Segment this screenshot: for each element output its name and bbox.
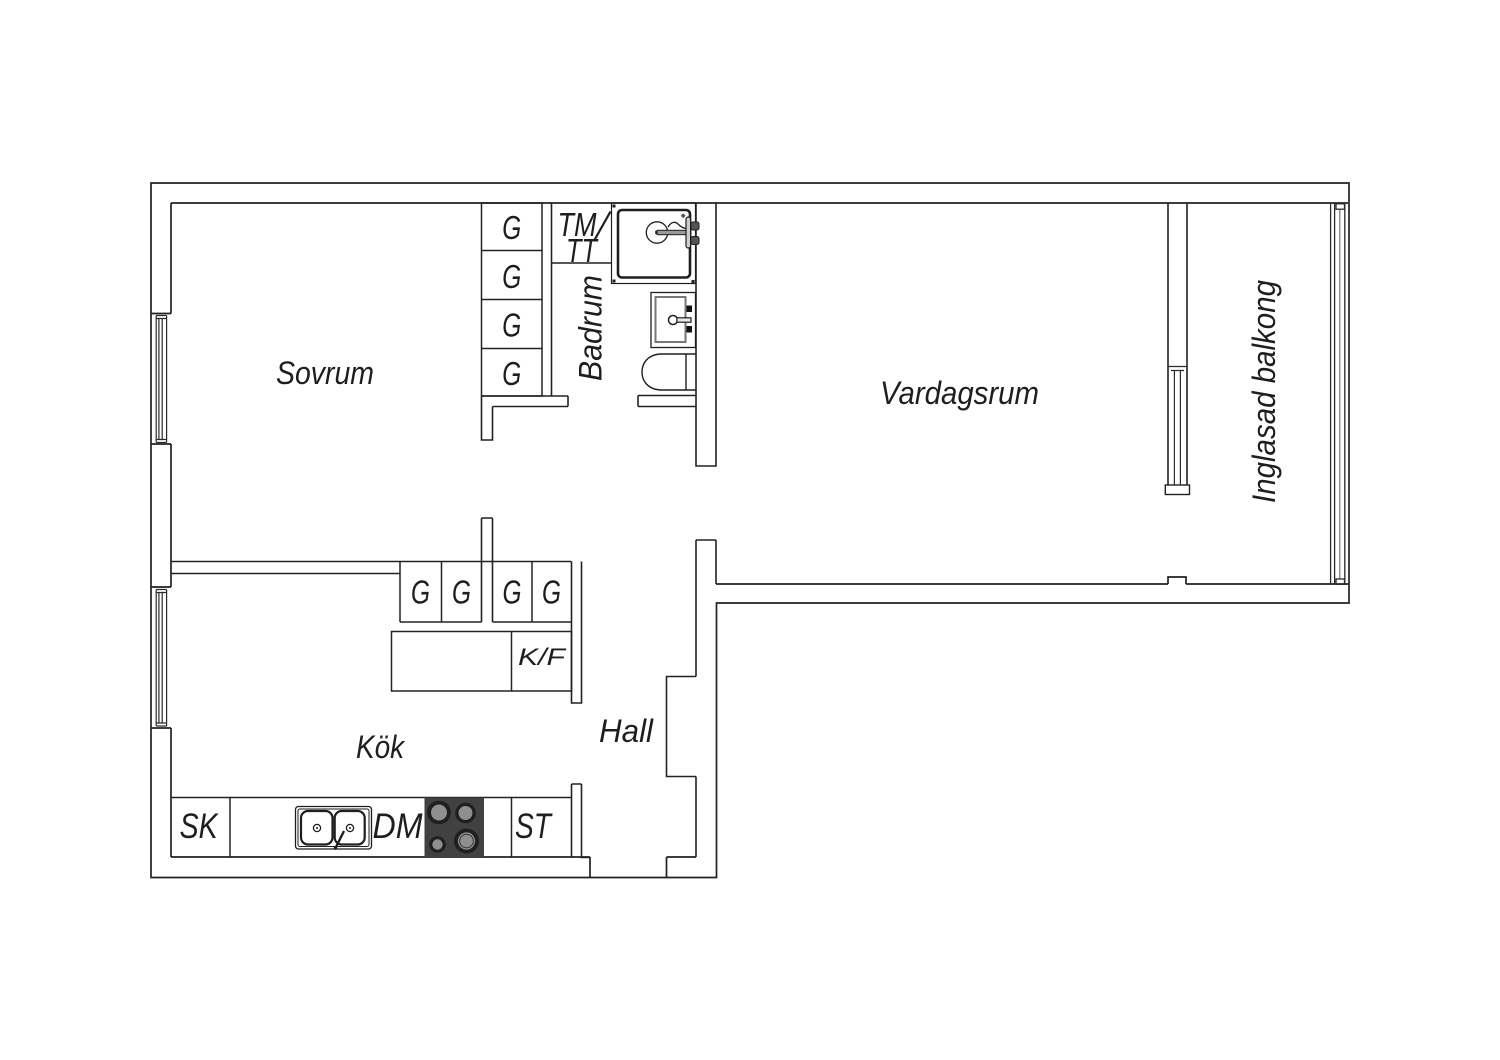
svg-text:G: G bbox=[502, 209, 521, 246]
svg-text:G: G bbox=[502, 258, 521, 295]
svg-text:DM: DM bbox=[373, 807, 424, 846]
svg-text:G: G bbox=[502, 355, 521, 392]
svg-text:G: G bbox=[411, 574, 430, 611]
svg-text:Hall: Hall bbox=[599, 713, 654, 749]
svg-text:K/F: K/F bbox=[518, 644, 567, 671]
svg-text:Kök: Kök bbox=[356, 729, 406, 765]
svg-text:G: G bbox=[542, 574, 561, 611]
svg-text:SK: SK bbox=[180, 807, 219, 846]
svg-text:ST: ST bbox=[515, 807, 553, 846]
svg-text:Sovrum: Sovrum bbox=[276, 355, 374, 391]
svg-text:Badrum: Badrum bbox=[573, 275, 609, 381]
svg-text:Vardagsrum: Vardagsrum bbox=[880, 375, 1039, 411]
svg-text:G: G bbox=[503, 574, 522, 611]
svg-text:Inglasad balkong: Inglasad balkong bbox=[1246, 280, 1282, 503]
svg-text:G: G bbox=[452, 574, 471, 611]
svg-text:TT: TT bbox=[566, 232, 599, 269]
svg-text:G: G bbox=[502, 307, 521, 344]
